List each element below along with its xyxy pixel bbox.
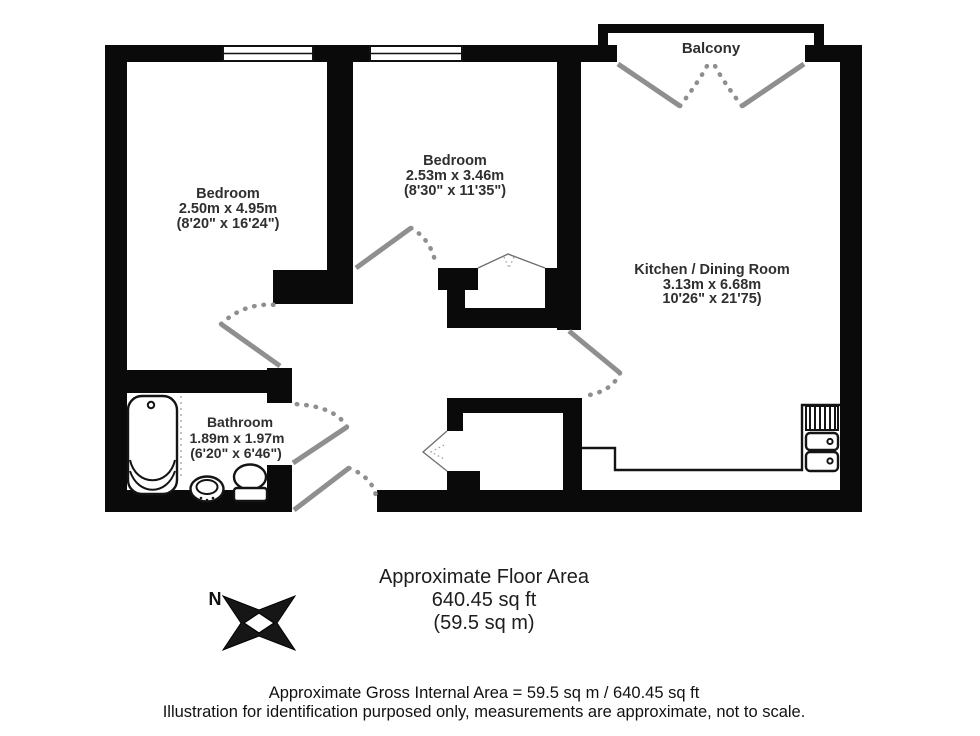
kitchen-imperial: 10'26" x 21'75) xyxy=(662,291,761,307)
toilet-icon xyxy=(234,465,267,502)
door-swing-icon xyxy=(569,331,620,396)
window-icon xyxy=(370,46,462,61)
bifold-door-icon xyxy=(478,254,545,268)
bifold-door-icon xyxy=(423,431,447,471)
floor-plan-page: Bedroom 2.50m x 4.95m (8'20" x 16'24") B… xyxy=(0,0,980,736)
door-swing-icon xyxy=(293,404,347,463)
door-swing-icon xyxy=(356,228,436,268)
compass-north-label: N xyxy=(209,589,222,609)
bathroom-imperial: (6'20" x 6'46") xyxy=(190,445,282,461)
room-label-bathroom: Bathroom 1.89m x 1.97m (6'20" x 6'46") xyxy=(190,414,285,461)
footer-line1: Approximate Gross Internal Area = 59.5 s… xyxy=(269,684,700,702)
bedroom-left-imperial: (8'20" x 16'24") xyxy=(177,216,280,232)
bathroom-name: Bathroom xyxy=(207,414,273,430)
door-swing-icon xyxy=(294,468,376,510)
window-icon xyxy=(223,46,313,61)
floor-plan-svg: Bedroom 2.50m x 4.95m (8'20" x 16'24") B… xyxy=(0,0,980,736)
bedroom-mid-name: Bedroom xyxy=(423,153,487,169)
bedroom-left-metric: 2.50m x 4.95m xyxy=(179,201,277,217)
bedroom-mid-metric: 2.53m x 3.46m xyxy=(406,168,504,184)
bathroom-metric: 1.89m x 1.97m xyxy=(190,430,285,446)
area-summary: Approximate Floor Area 640.45 sq ft (59.… xyxy=(379,566,590,634)
room-label-bedroom-mid: Bedroom 2.53m x 3.46m (8'30" x 11'35") xyxy=(404,153,506,199)
door-swing-icon xyxy=(221,305,280,366)
area-sqm: (59.5 sq m) xyxy=(433,612,534,634)
sink-icon xyxy=(191,477,224,502)
bedroom-left-name: Bedroom xyxy=(196,186,260,202)
balcony-french-doors-icon xyxy=(618,64,804,106)
kitchen-name: Kitchen / Dining Room xyxy=(634,262,789,278)
bedroom-mid-imperial: (8'30" x 11'35") xyxy=(404,183,506,199)
area-heading: Approximate Floor Area xyxy=(379,566,590,588)
bathtub-icon xyxy=(128,396,181,494)
footer-disclaimer: Approximate Gross Internal Area = 59.5 s… xyxy=(163,684,806,721)
room-label-bedroom-left: Bedroom 2.50m x 4.95m (8'20" x 16'24") xyxy=(177,186,280,232)
balcony-label: Balcony xyxy=(682,40,741,57)
kitchen-counter xyxy=(582,405,840,470)
compass-icon: N xyxy=(209,589,296,650)
room-label-kitchen: Kitchen / Dining Room 3.13m x 6.68m 10'2… xyxy=(634,262,789,307)
area-sqft: 640.45 sq ft xyxy=(432,589,537,611)
footer-line2: Illustration for identification purposed… xyxy=(163,703,806,721)
kitchen-sink-icon xyxy=(806,406,838,471)
